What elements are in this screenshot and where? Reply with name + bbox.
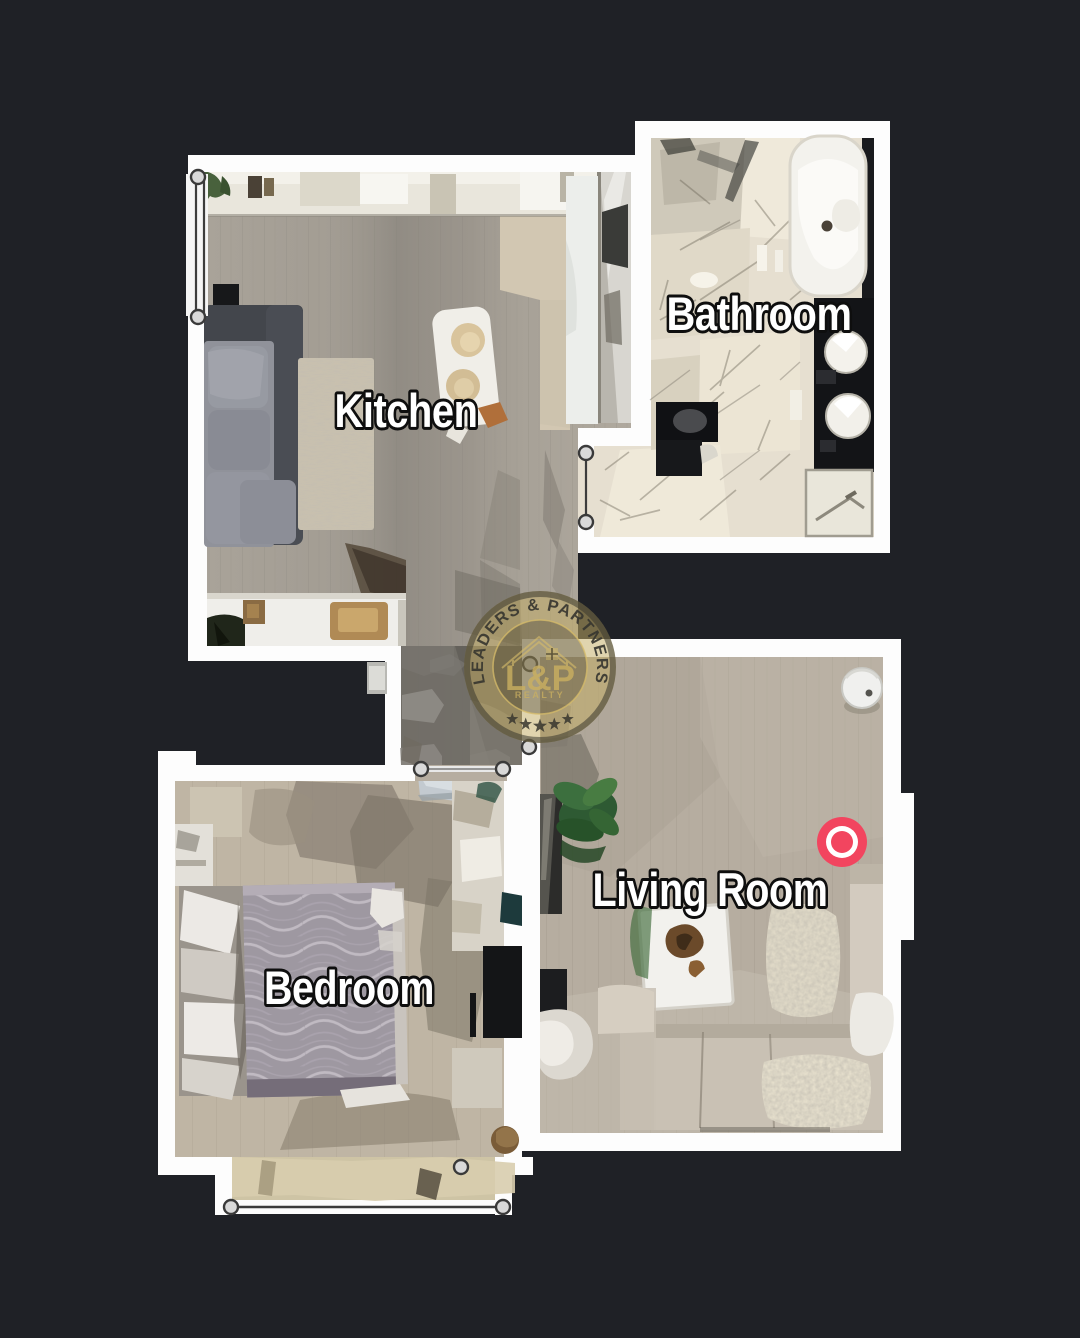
svg-text:REALTY: REALTY <box>515 690 565 700</box>
svg-text:Bedroom: Bedroom <box>264 961 434 1014</box>
svg-text:Bathroom: Bathroom <box>667 287 852 340</box>
svg-text:Living Room: Living Room <box>593 863 828 916</box>
svg-text:Kitchen: Kitchen <box>335 384 478 437</box>
